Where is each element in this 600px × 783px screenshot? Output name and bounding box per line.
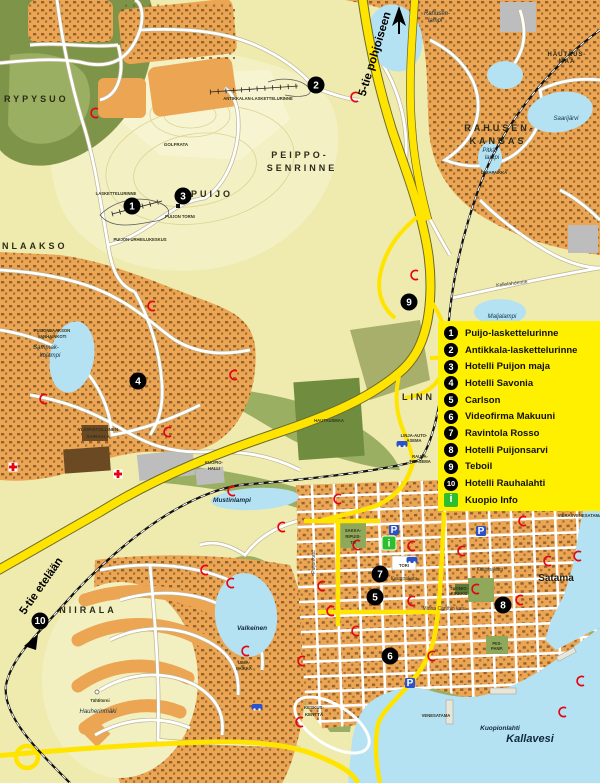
marker-10-number: 10 [34, 616, 46, 627]
map-legend: 1Puijo-laskettelurinne 2Antikkala-lasket… [438, 321, 600, 511]
label-hautausmaa-north2: MAA [559, 59, 576, 65]
parking-icon: P [478, 526, 485, 537]
legend-info-icon: i [444, 493, 458, 507]
legend-item-9: 9Teboil [444, 459, 600, 476]
label-kauppakatu: Kauppakatu [391, 576, 418, 582]
marker-2-number: 2 [313, 81, 319, 92]
label-uimapaikka: UIMA- [238, 660, 251, 665]
label-kuopiohalli2: HALLI [208, 466, 220, 471]
label-vierasvenesatama: VIERASVENESATAMA [558, 513, 600, 518]
marker-7-number: 7 [377, 570, 383, 581]
legend-item-8: 8Hotelli Puijonsarvi [444, 442, 600, 459]
marker-5-number: 5 [372, 593, 378, 604]
label-puisto: SAKKA- [345, 528, 362, 533]
legend-label-3: Hotelli Puijon maja [465, 361, 550, 372]
label-urheilukeskus: PUIJON-URHEILUKESKUS [113, 237, 166, 242]
marker-4-number: 4 [135, 377, 141, 388]
label-keskuskentta2: KENTTÄ [305, 711, 324, 717]
legend-label-8: Hotelli Puijonsarvi [465, 445, 548, 456]
legend-label-4: Hotelli Savonia [465, 378, 533, 389]
puijo-tower [176, 204, 180, 208]
label-tuomiokirkko2: KIRKKO [451, 591, 468, 596]
map-canvas: P P P RYPYSUO NLAAKSO PUIJO PEIPPO- SENR… [0, 0, 600, 783]
marker-3-number: 3 [180, 192, 186, 203]
parking-icon: P [391, 525, 398, 536]
label-maljalampi: Maljalampi [488, 314, 517, 320]
label-tori: TORI [399, 563, 409, 568]
label-peipposenrinne: PEIPPO- [271, 150, 329, 160]
legend-item-7: 7Ravintola Rosso [444, 425, 600, 442]
label-uimapaikka2: PAIKKA [236, 666, 252, 671]
map-marker-2[interactable]: 2 [308, 77, 325, 94]
legend-item-5: 5Carlson [444, 392, 600, 409]
label-rahusenkangas2: KANGAS [469, 136, 526, 146]
legend-badge-3: 3 [444, 360, 458, 374]
label-kauppakatu-2: Kauppakatu [477, 567, 504, 573]
legend-label-2: Antikkala-laskettelurinne [465, 345, 577, 356]
legend-badge-5: 5 [444, 393, 458, 407]
legend-badge-6: 6 [444, 410, 458, 424]
label-uimapaikka-pitka: UIMAPAIKKA [481, 170, 507, 175]
label-sammakkolampi: Sammak- [33, 345, 59, 351]
label-sairaala2: SAIRAALA [86, 434, 110, 439]
legend-badge-7: 7 [444, 426, 458, 440]
label-hauherinmaki: Hauherinmäki [79, 709, 117, 715]
label-antikkala: ANTIKKALAN-LASKETTELURINNE [223, 96, 293, 101]
map-marker-6[interactable]: 6 [382, 648, 399, 665]
label-puijonkatu: Puijonkatu [311, 550, 317, 574]
map-marker-3[interactable]: 3 [175, 188, 192, 205]
legend-item-3: 3Hotelli Puijon maja [444, 358, 600, 375]
map-marker-info[interactable]: i [382, 536, 396, 550]
label-puijo: PUIJO [191, 189, 233, 199]
label-vanhainkoti: PUIJONLAAKSON [34, 328, 70, 333]
label-laskettelurinne: LASKETTELURINNE [96, 191, 137, 196]
label-minnacanthinkatu: Minna Canthin katu [422, 606, 465, 612]
map-marker-9[interactable]: 9 [401, 294, 418, 311]
label-hautausmaa-central: HAUTAUSMAA [314, 418, 344, 423]
label-tahtitorni: Tähtitorni [90, 698, 109, 703]
marker-9-number: 9 [406, 298, 412, 309]
legend-item-info: iKuopio Info [444, 492, 600, 509]
label-peipposenrinne2: SENRINNE [267, 163, 338, 173]
legend-badge-1: 1 [444, 326, 458, 340]
label-pitkalampi: Pitkä- [482, 148, 497, 154]
label-mustinlampi: Mustinlampi [213, 497, 251, 504]
label-rautatieasema2: TIEASEMA [409, 459, 431, 464]
legend-label-7: Ravintola Rosso [465, 428, 539, 439]
label-linnanpelto: LINN [402, 392, 435, 402]
label-rahusenkangas: RAHUSEN- [464, 123, 536, 133]
car-icon [252, 704, 263, 711]
label-rypysuo: RYPYSUO [4, 94, 69, 104]
map-marker-1[interactable]: 1 [124, 198, 141, 215]
legend-label-1: Puijo-laskettelurinne [465, 328, 558, 339]
label-venesatama: VENESATAMA [422, 713, 451, 718]
label-rahusenlampi: Rahusen- [424, 11, 450, 17]
label-pitkalampi2: lampi [485, 155, 500, 161]
marker-1-number: 1 [129, 202, 135, 213]
legend-label-info: Kuopio Info [465, 495, 518, 506]
label-sairaala: YLIOPISTOLLINEN [78, 427, 118, 432]
legend-item-1: 1Puijo-laskettelurinne [444, 325, 600, 342]
label-golfrata: GOLFRATA [164, 142, 189, 147]
label-hautausmaa-north: HAUTAUS- [548, 52, 587, 58]
map-marker-7[interactable]: 7 [372, 566, 389, 583]
legend-item-6: 6Videofirma Makuuni [444, 408, 600, 425]
label-saarijarvi: Saarijärvi [553, 116, 579, 122]
label-keskuskentta: KESKUS- [304, 705, 325, 710]
label-bussiasema2: ASEMA [406, 438, 421, 443]
label-kuopiohalli: KUOPIO- [205, 460, 224, 465]
legend-item-2: 2Antikkala-laskettelurinne [444, 342, 600, 359]
label-niirala: NIIRALA [59, 605, 117, 615]
marker-8-number: 8 [500, 601, 506, 612]
legend-label-10: Hotelli Rauhalahti [465, 478, 545, 489]
legend-label-6: Videofirma Makuuni [465, 411, 555, 422]
label-sammakkolampi2: kolampi [40, 353, 61, 359]
label-vanhainkoti2: VANHAINKOTI [38, 334, 67, 339]
map-marker-8[interactable]: 8 [495, 597, 512, 614]
label-piispanpuisto2: PANP. [491, 646, 503, 651]
legend-badge-4: 4 [444, 376, 458, 390]
marker-6-number: 6 [387, 652, 393, 663]
label-puisto3: TO [350, 540, 356, 545]
legend-badge-10: 10 [444, 477, 458, 491]
legend-label-5: Carlson [465, 395, 500, 406]
label-kallavesi: Kallavesi [506, 733, 555, 745]
label-satama: Satama [538, 573, 574, 584]
label-puijonlaakso: NLAAKSO [2, 241, 68, 251]
legend-badge-9: 9 [444, 460, 458, 474]
observatory [95, 690, 99, 694]
legend-badge-2: 2 [444, 343, 458, 357]
label-puisto2: RIPUIS- [345, 534, 361, 539]
map-marker-4[interactable]: 4 [130, 373, 147, 390]
legend-label-9: Teboil [465, 461, 492, 472]
legend-item-4: 4Hotelli Savonia [444, 375, 600, 392]
legend-item-10: 10Hotelli Rauhalahti [444, 475, 600, 492]
label-kuopionlahti: Kuopionlahti [480, 725, 520, 732]
map-marker-5[interactable]: 5 [367, 589, 384, 606]
label-rahusenlampi2: lampi [428, 18, 443, 24]
label-puijontorni: PUIJON TORNI [165, 214, 195, 219]
label-valkeinen: Valkeinen [237, 625, 267, 632]
map-marker-10[interactable]: 10 [32, 613, 49, 630]
info-icon: i [388, 539, 391, 550]
parking-icon: P [407, 678, 414, 689]
legend-badge-8: 8 [444, 443, 458, 457]
